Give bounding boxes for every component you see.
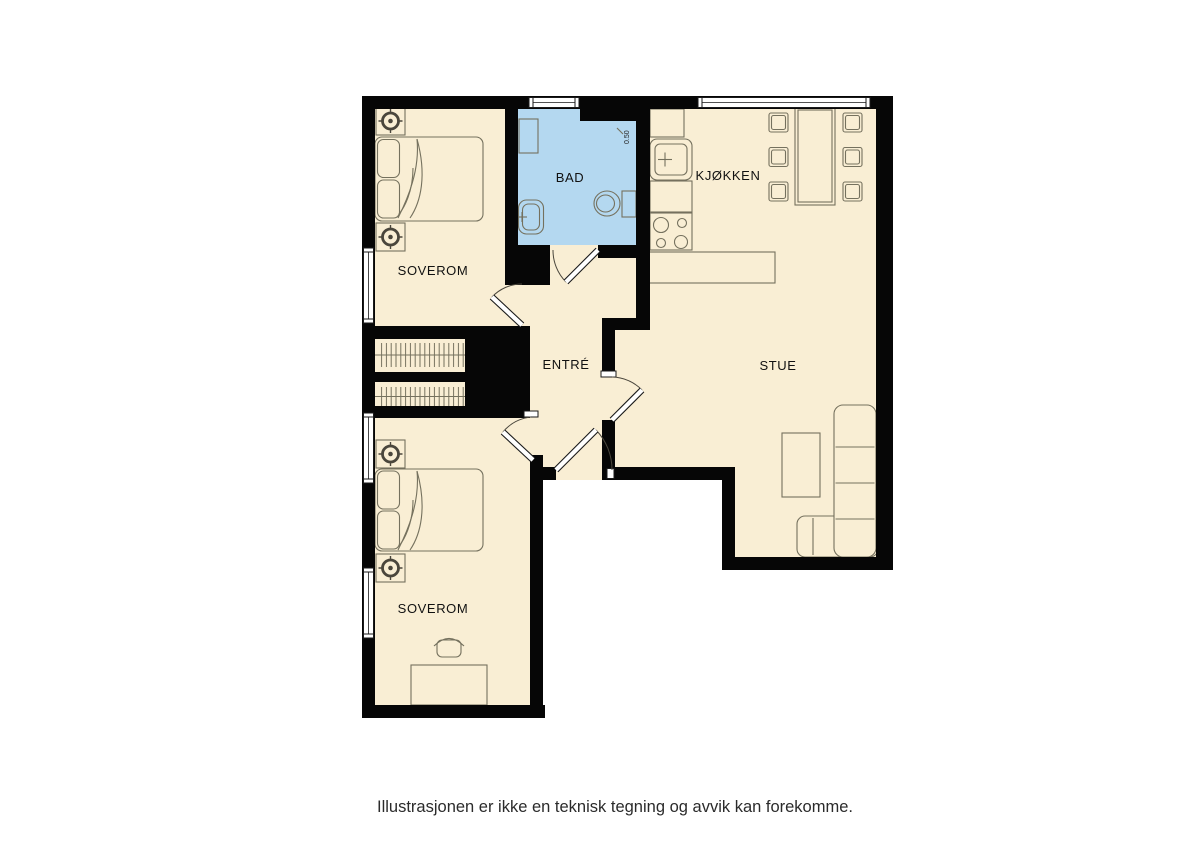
floor-plan: 0.50 xyxy=(0,0,1200,848)
wall-segment xyxy=(505,245,550,285)
wall-segment xyxy=(722,557,893,570)
wall-segment xyxy=(543,467,556,480)
wall-segment xyxy=(602,318,615,377)
wall-segment xyxy=(530,455,543,718)
wall-segment xyxy=(722,467,735,570)
wall-segment xyxy=(362,705,545,718)
ceiling-lamp-symbol xyxy=(376,554,405,582)
wall-segment xyxy=(362,406,470,418)
wardrobe-closet xyxy=(375,387,465,406)
window xyxy=(364,248,374,323)
floorplan-page: 0.50 xyxy=(0,0,1200,848)
window xyxy=(529,98,579,108)
room-label-bad: BAD xyxy=(556,170,585,185)
wall-segment xyxy=(612,467,735,480)
window xyxy=(364,413,374,483)
window xyxy=(698,98,870,108)
wall-segment xyxy=(580,109,650,121)
ceiling-lamp-symbol xyxy=(376,223,405,251)
wall-segment xyxy=(636,96,650,330)
wall-segment xyxy=(876,96,893,570)
room-label-stue: STUE xyxy=(759,358,796,373)
room-label-entre: ENTRÉ xyxy=(542,357,589,372)
disclaimer-caption: Illustrasjonen er ikke en teknisk tegnin… xyxy=(377,798,853,816)
bath-dimension-text: 0.50 xyxy=(624,130,631,144)
room-label-kjokken: KJØKKEN xyxy=(696,168,761,183)
wall-segment xyxy=(505,96,518,258)
wall-segment xyxy=(362,326,470,339)
wardrobe-closet xyxy=(375,343,465,367)
wall-segment xyxy=(362,372,470,382)
ceiling-lamp-symbol xyxy=(376,107,405,135)
ceiling-lamp-symbol xyxy=(376,440,405,468)
wall-segment xyxy=(465,326,530,418)
room-label-soverom-bottom: SOVEROM xyxy=(398,601,469,616)
window xyxy=(364,568,374,638)
room-label-soverom-top: SOVEROM xyxy=(398,263,469,278)
